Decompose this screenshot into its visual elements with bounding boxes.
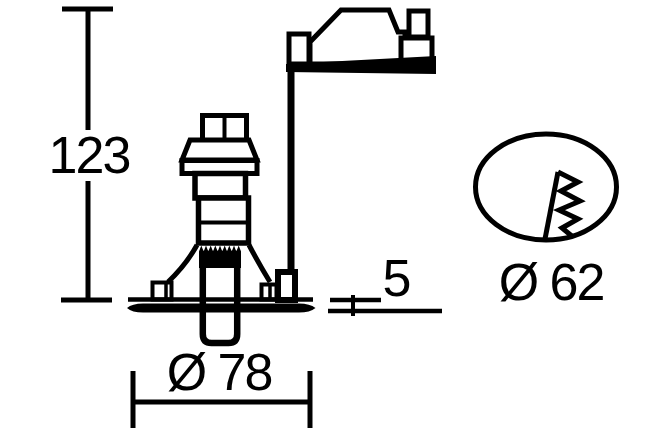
trim-flange bbox=[127, 304, 316, 313]
driver-box-body bbox=[310, 10, 412, 64]
spring-clip-left bbox=[153, 283, 172, 300]
thickness-dim-label: 5 bbox=[383, 249, 410, 307]
fixture-neck-upper bbox=[195, 174, 246, 199]
heatsink-fins bbox=[199, 246, 241, 269]
downlight-dimension-drawing: 123 5 bbox=[0, 0, 647, 436]
fixture-shoulder-taper bbox=[182, 140, 257, 160]
height-dim-label: 123 bbox=[49, 126, 130, 184]
reflector-cone-left bbox=[168, 245, 197, 282]
cutout-dim-label: Ø 62 bbox=[499, 253, 604, 311]
height-dimension: 123 bbox=[49, 9, 130, 300]
technical-drawing-canvas: 123 5 bbox=[0, 0, 647, 436]
cut-flag-edge bbox=[545, 172, 558, 239]
driver-box-left-lug bbox=[289, 34, 309, 64]
driver-box-terminal bbox=[409, 11, 428, 37]
driver-box bbox=[286, 10, 436, 74]
cut-flag-zigzag bbox=[558, 172, 580, 237]
arm-bracket bbox=[278, 272, 295, 300]
fixture-body bbox=[127, 115, 316, 343]
reflector-cone-right bbox=[249, 245, 270, 282]
flange-thickness-dimension: 5 bbox=[328, 249, 442, 316]
diameter-dim-label: Ø 78 bbox=[167, 343, 272, 401]
cutout-symbol: Ø 62 bbox=[476, 134, 617, 311]
flange-diameter-dimension: Ø 78 bbox=[133, 343, 310, 428]
